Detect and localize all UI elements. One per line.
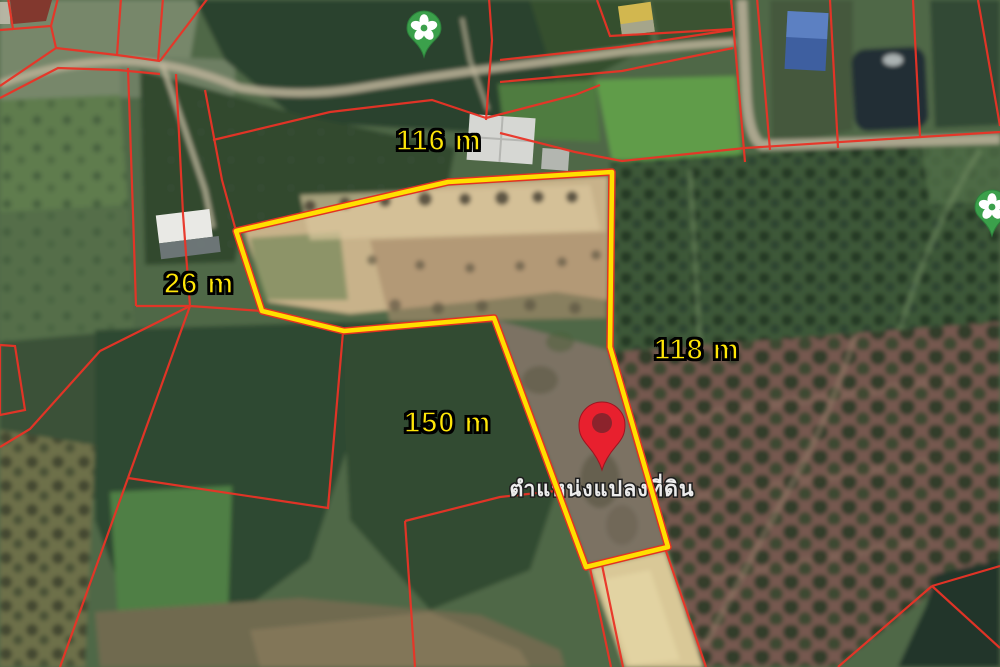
yellow-roof-building: [618, 2, 655, 36]
satellite-map-image: ตำแหน่งแปลงที่ดิน: [0, 0, 1000, 667]
plot-location-label: ตำแหน่งแปลงที่ดิน: [509, 473, 694, 501]
dimension-label-left: 26 m: [164, 270, 234, 299]
dimension-label-center: 150 m: [404, 409, 491, 438]
red-roof-building: [10, 0, 52, 24]
satellite-map-canvas: ตำแหน่งแปลงที่ดิน 116 m 26 m 150: [0, 0, 1000, 667]
blue-roof-building: [785, 11, 829, 71]
dimension-label-top: 116 m: [396, 127, 482, 156]
dimension-label-right: 118 m: [654, 336, 740, 365]
